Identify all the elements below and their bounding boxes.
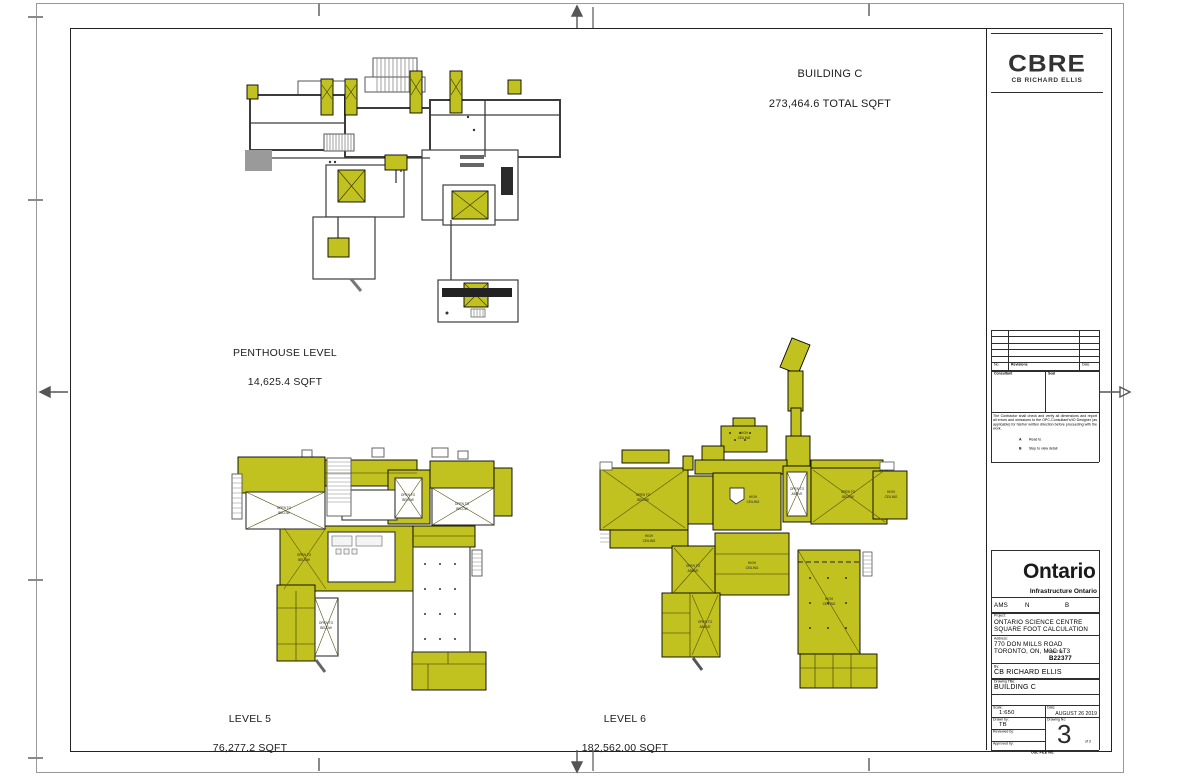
penthouse-name: PENTHOUSE LEVEL (205, 346, 365, 360)
svg-text:OPEN TO: OPEN TO (790, 487, 805, 491)
svg-text:BELOW: BELOW (402, 498, 414, 502)
svg-text:OPEN TO: OPEN TO (277, 506, 292, 510)
scale-value: 1:650 (999, 710, 1015, 716)
drawn-by-label: Drawn by: (993, 718, 1009, 722)
penthouse-label: PENTHOUSE LEVEL 14,625.4 SQFT (205, 332, 365, 403)
penthouse-plan (238, 55, 563, 323)
level6-area: 182,562.00 SQFT (545, 741, 705, 755)
drawing-no-of: of 3 (1085, 740, 1091, 744)
svg-text:CEILING: CEILING (747, 500, 760, 504)
fold-tick (28, 757, 43, 759)
svg-text:BELOW: BELOW (842, 495, 854, 499)
svg-text:CEILING: CEILING (823, 602, 836, 606)
svg-text:HIGH: HIGH (887, 490, 896, 494)
svg-text:HIGH: HIGH (825, 597, 834, 601)
svg-text:ABOVE: ABOVE (792, 492, 803, 496)
level5-name: LEVEL 5 (170, 712, 330, 726)
svg-text:HIGH: HIGH (645, 534, 654, 538)
svg-text:CEILING: CEILING (746, 566, 759, 570)
by-label: By: (994, 665, 999, 669)
center-mark-top-icon (566, 4, 606, 30)
project-name-2: SQUARE FOOT CALCULATION (994, 626, 1088, 633)
level6-name: LEVEL 6 (545, 712, 705, 726)
ams-label: AMS (994, 602, 1008, 609)
scale-label: Scale: (993, 706, 1003, 710)
date-label: Date: (1047, 706, 1055, 710)
seal-label: Seal (1048, 372, 1055, 376)
svg-text:OPEN TO: OPEN TO (319, 621, 334, 625)
drawing-title-value: BUILDING C (994, 684, 1036, 691)
svg-text:BELOW: BELOW (320, 626, 332, 630)
svg-text:HIGH: HIGH (749, 495, 758, 499)
svg-text:CEILING: CEILING (738, 436, 751, 440)
svg-text:OPEN TO: OPEN TO (401, 493, 416, 497)
svg-text:OPEN TO: OPEN TO (686, 564, 701, 568)
titleblock-footer: OSC FILE NO. (1031, 751, 1054, 755)
fold-tick (28, 199, 43, 201)
svg-text:HIGH: HIGH (740, 431, 749, 435)
fold-tick (868, 3, 870, 16)
consultant-label: Consultant (994, 372, 1012, 376)
fold-tick (318, 3, 320, 16)
project-label: Project: (994, 614, 1006, 618)
reviewed-by-label: Reviewed by: (993, 730, 1014, 734)
svg-text:ABOVE: ABOVE (700, 625, 711, 629)
project-name-1: ONTARIO SCIENCE CENTRE (994, 619, 1083, 626)
svg-text:ABOVE: ABOVE (688, 569, 699, 573)
drawing-no-value: 3 (1057, 719, 1071, 750)
ams-n: N (1025, 602, 1030, 609)
drawing-title-label: Drawing Title: (994, 680, 1015, 684)
svg-text:BELOW: BELOW (298, 558, 310, 562)
svg-text:HIGH: HIGH (748, 561, 757, 565)
level5-plan: OPEN TOBELOW OPEN TOBELOW OPEN TOBELOW O… (232, 448, 552, 693)
address-label: Address: (994, 637, 1008, 641)
drawn-by-value: TB (999, 722, 1007, 728)
cbre-logo: CBRE (991, 49, 1103, 78)
svg-text:OPEN TO: OPEN TO (297, 553, 312, 557)
svg-text:OPEN TO: OPEN TO (636, 493, 651, 497)
level6-floor (600, 338, 907, 688)
level5-label: LEVEL 5 76,277.2 SQFT (170, 698, 330, 769)
svg-text:CEILING: CEILING (643, 539, 656, 543)
legend-a-text: Read to (1029, 438, 1041, 442)
legend-a-key: A (1019, 438, 1022, 442)
legend-b-text: Step to view detail (1029, 447, 1057, 451)
building-title-line1: BUILDING C (730, 67, 930, 82)
ams-b: B (1065, 602, 1069, 609)
by-value: CB RICHARD ELLIS (994, 669, 1062, 676)
penthouse-area: 14,625.4 SQFT (205, 375, 365, 389)
project-no: B22377 (1049, 655, 1072, 662)
fold-tick (28, 16, 43, 18)
ontario-wordmark: Ontario (1023, 560, 1096, 584)
svg-text:CEILING: CEILING (885, 495, 898, 499)
building-title: BUILDING C 273,464.6 TOTAL SQFT (730, 52, 930, 126)
svg-text:OPEN TO: OPEN TO (841, 490, 856, 494)
svg-text:OPEN TO: OPEN TO (698, 620, 713, 624)
level6-plan: HIGHCEILING HIGHCEILING OPEN TOABOVE OPE… (595, 338, 920, 690)
drawing-sheet: BUILDING C 273,464.6 TOTAL SQFT PENTHOUS… (0, 0, 1179, 777)
fold-tick (28, 579, 43, 581)
project-no-label: Project No: (1047, 650, 1064, 654)
svg-text:OPEN TO: OPEN TO (455, 502, 470, 506)
legend-b-key: B (1019, 447, 1022, 451)
contractor-note-text: The Contractor shall check and verify al… (993, 414, 1097, 431)
center-mark-left-icon (34, 380, 72, 404)
ontario-sub: Infrastructure Ontario (1017, 588, 1097, 595)
address-1: 770 DON MILLS ROAD (994, 641, 1063, 648)
approved-by-label: Approved by: (993, 742, 1014, 746)
date-value: AUGUST 26 2019 (1047, 711, 1097, 717)
svg-text:BELOW: BELOW (637, 498, 649, 502)
rev-col-desc: Revisions (1011, 363, 1028, 367)
building-title-line2: 273,464.6 TOTAL SQFT (730, 97, 930, 112)
fold-tick (868, 758, 870, 771)
svg-text:BELOW: BELOW (278, 511, 290, 515)
rev-col-date: Date (1082, 363, 1089, 367)
level6-label: LEVEL 6 182,562.00 SQFT (545, 698, 705, 769)
contractor-note: The Contractor shall check and verify al… (993, 414, 1097, 438)
title-block: CBRE CB RICHARD ELLIS No. Revisions Date… (986, 28, 1109, 750)
level5-area: 76,277.2 SQFT (170, 741, 330, 755)
rev-col-no: No. (994, 363, 999, 367)
svg-text:BELOW: BELOW (456, 507, 468, 511)
cbre-logo-sub: CB RICHARD ELLIS (991, 77, 1103, 84)
